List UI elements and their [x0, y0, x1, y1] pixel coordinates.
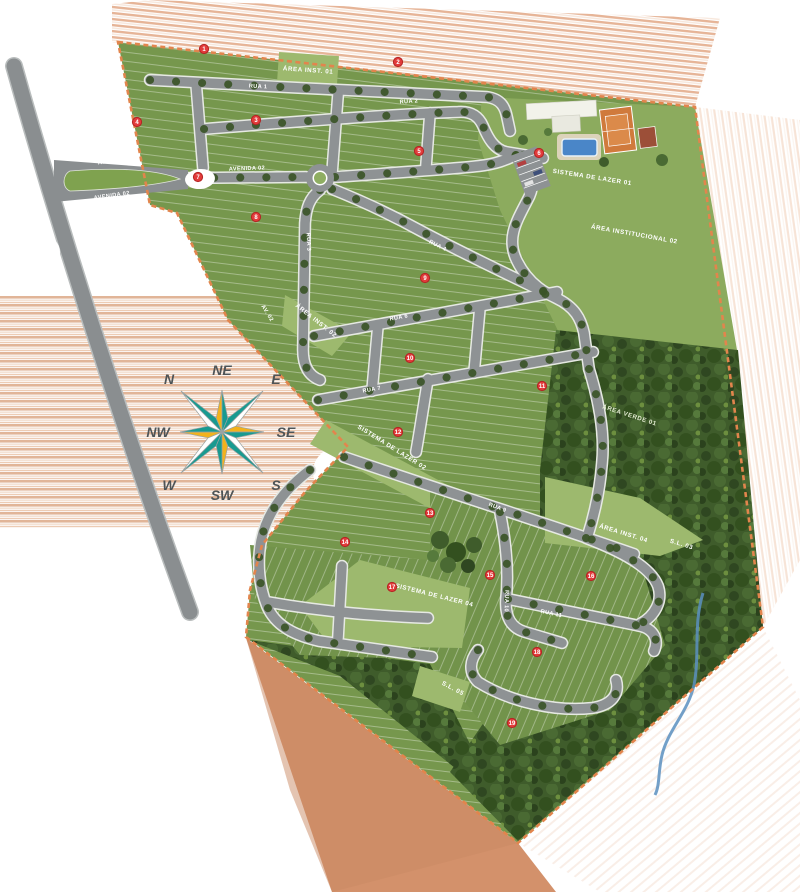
compass-sw: SW	[211, 487, 235, 503]
compass-w: W	[162, 477, 177, 493]
svg-text:12: 12	[395, 430, 402, 436]
quadra-marker: 1	[199, 44, 208, 53]
masterplan-svg: RUA 1 RUA 2 RUA 3 RUA 4 RUA 6 RUA 7 RUA …	[0, 0, 800, 892]
clubhouse-wing	[552, 115, 581, 132]
compass-se: SE	[277, 424, 296, 440]
svg-text:18: 18	[534, 650, 541, 656]
street-label-avenida-02b: AVENIDA 02	[229, 165, 266, 172]
quadra-marker: 6	[534, 148, 543, 157]
quadra-marker: 11	[537, 381, 546, 390]
quadra-marker: 17	[387, 582, 396, 591]
quadra-marker: 18	[532, 647, 541, 656]
quadra-marker: 9	[420, 273, 429, 282]
quadra-marker: 8	[251, 212, 260, 221]
svg-text:19: 19	[509, 721, 516, 727]
quadra-marker: 10	[405, 353, 414, 362]
compass-nw: NW	[146, 424, 171, 440]
compass-rose: N NE E SE S SW W NW	[140, 350, 304, 514]
svg-text:16: 16	[588, 574, 595, 580]
quadra-marker: 4	[132, 117, 141, 126]
svg-text:11: 11	[539, 384, 546, 390]
svg-text:14: 14	[342, 540, 349, 546]
quadra-marker: 16	[586, 571, 595, 580]
quadra-marker: 7	[193, 172, 202, 181]
masterplan-canvas: RUA 1 RUA 2 RUA 3 RUA 4 RUA 6 RUA 7 RUA …	[0, 0, 800, 892]
compass-s: S	[271, 477, 281, 493]
quadra-marker: 5	[414, 146, 423, 155]
quadra-marker: 19	[507, 718, 516, 727]
compass-n: N	[164, 371, 175, 387]
pool	[562, 139, 597, 156]
svg-text:15: 15	[487, 573, 494, 579]
compass-ne: NE	[212, 362, 232, 378]
street-label-rua-1: RUA 1	[249, 84, 268, 91]
quadra-marker: 15	[485, 570, 494, 579]
svg-text:13: 13	[427, 511, 434, 517]
compass-e: E	[271, 371, 281, 387]
quadra-marker: 3	[251, 115, 260, 124]
svg-text:10: 10	[407, 356, 414, 362]
quadra-marker: 14	[340, 537, 349, 546]
quadra-marker: 12	[393, 427, 402, 436]
street-label-rua-3: RUA 3	[305, 233, 312, 252]
roundabout	[306, 164, 334, 192]
quadra-marker: 2	[393, 57, 402, 66]
quadra-marker: 13	[425, 508, 434, 517]
street-label-rua-10: RUA 10	[503, 590, 510, 612]
svg-text:17: 17	[389, 585, 396, 591]
mini-court	[638, 126, 657, 148]
